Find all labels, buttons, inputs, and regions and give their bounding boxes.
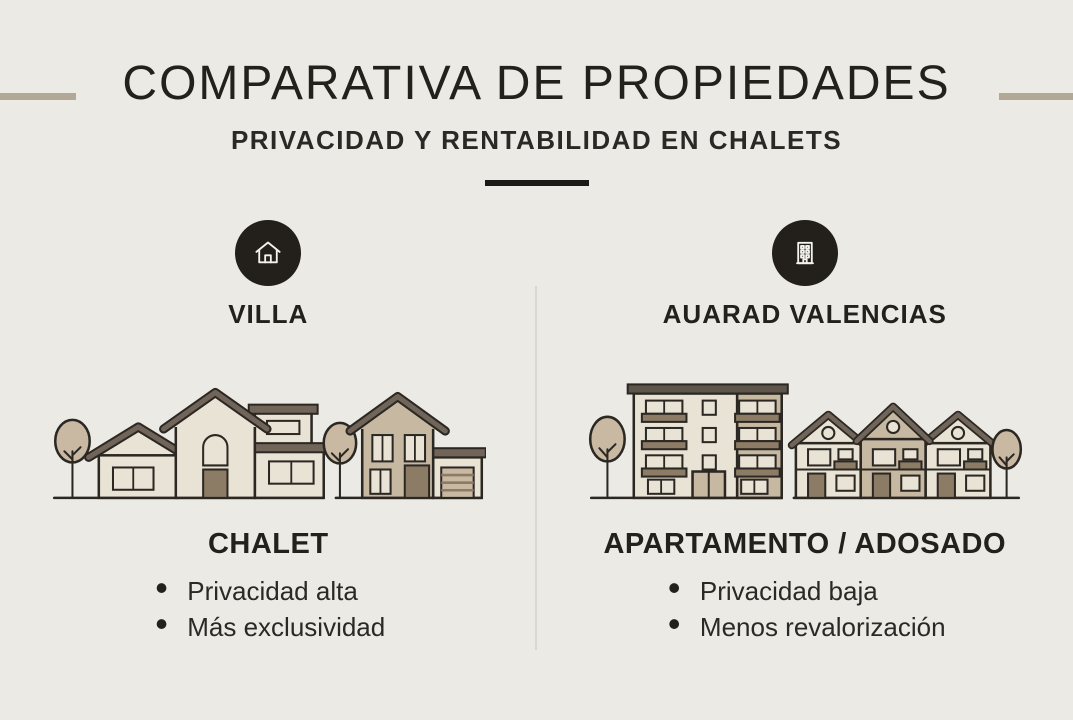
apartment-building-icon bbox=[772, 220, 838, 286]
bullet-item: Más exclusividad bbox=[151, 609, 385, 645]
column-label-apartamento: AUARAD VALENCIAS bbox=[537, 299, 1073, 330]
apartment-building-icon-glyph bbox=[788, 236, 822, 270]
apartment-illustration bbox=[587, 354, 1023, 508]
title-divider bbox=[485, 180, 589, 186]
townhouse-row bbox=[792, 407, 995, 498]
bullet-item: Menos revalorización bbox=[664, 609, 946, 645]
bullet-item: Privacidad baja bbox=[664, 573, 946, 609]
property-comparison-infographic: COMPARATIVA DE PROPIEDADES PRIVACIDAD Y … bbox=[0, 0, 1073, 720]
column-villa: VILLA bbox=[0, 220, 537, 645]
title-accent-rule-right bbox=[999, 93, 1073, 100]
chalet-illustration bbox=[50, 354, 486, 508]
detached-house-2 bbox=[350, 397, 486, 498]
home-icon bbox=[235, 220, 301, 286]
tree bbox=[992, 430, 1020, 498]
apartment-building bbox=[627, 385, 787, 498]
detached-house-1 bbox=[89, 393, 330, 498]
bullet-list-chalet: Privacidad alta Más exclusividad bbox=[151, 573, 385, 645]
bullet-item: Privacidad alta bbox=[151, 573, 385, 609]
column-heading-apartamento: APARTAMENTO / ADOSADO bbox=[537, 528, 1073, 561]
column-divider-line bbox=[535, 286, 537, 650]
column-heading-chalet: CHALET bbox=[0, 528, 537, 561]
page-title: COMPARATIVA DE PROPIEDADES bbox=[0, 56, 1073, 111]
tree bbox=[590, 417, 624, 498]
page-subtitle: PRIVACIDAD Y RENTABILIDAD EN CHALETS bbox=[0, 125, 1073, 156]
bullet-list-apartamento: Privacidad baja Menos revalorización bbox=[664, 573, 946, 645]
column-label-villa: VILLA bbox=[0, 299, 537, 330]
comparison-columns: VILLA bbox=[0, 220, 1073, 645]
home-icon-glyph bbox=[251, 236, 285, 270]
column-apartamento: AUARAD VALENCIAS bbox=[537, 220, 1073, 645]
title-accent-rule-left bbox=[0, 93, 76, 100]
header: COMPARATIVA DE PROPIEDADES PRIVACIDAD Y … bbox=[0, 0, 1073, 186]
